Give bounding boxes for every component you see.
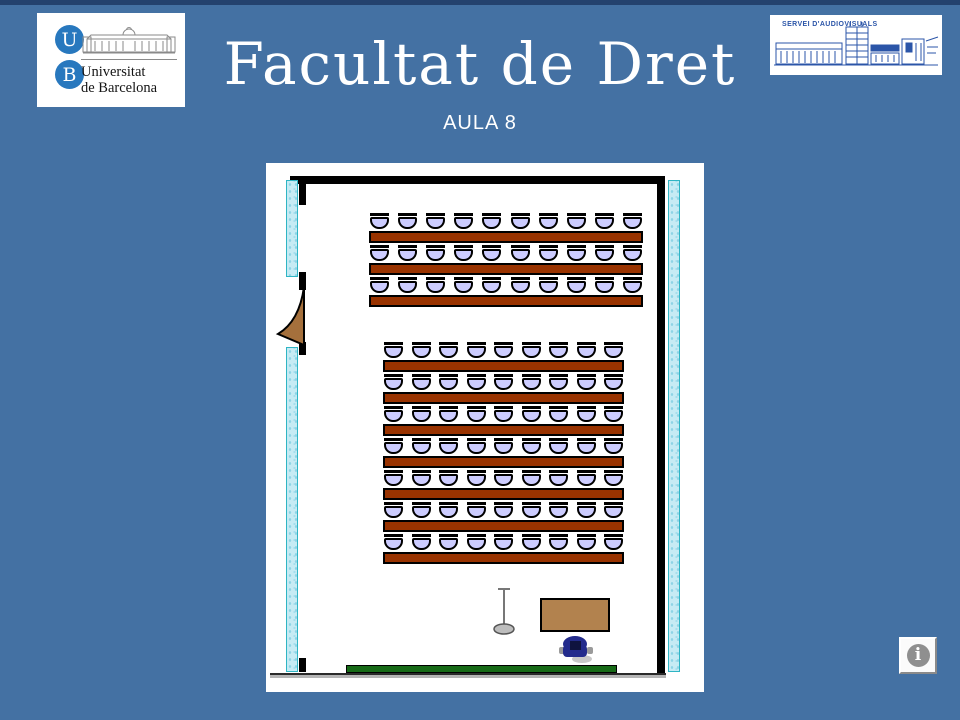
chair-icon: [538, 213, 559, 229]
chair-icon: [453, 213, 474, 229]
chair-icon: [521, 534, 542, 550]
av-services-logo: SERVEI D'AUDIOVISUALS: [770, 15, 942, 75]
chair-icon: [566, 213, 587, 229]
side-wall-strip: [286, 180, 298, 277]
desk-bench: [369, 263, 643, 275]
chair-icon: [603, 342, 624, 358]
chair-icon: [521, 438, 542, 454]
chair-icon: [493, 406, 514, 422]
chair-row: [383, 374, 624, 390]
chair-icon: [576, 534, 597, 550]
wall-top: [290, 176, 664, 184]
chair-icon: [481, 245, 502, 261]
chair-icon: [493, 438, 514, 454]
chair-icon: [383, 534, 404, 550]
desk-bench: [383, 520, 624, 532]
chair-icon: [576, 406, 597, 422]
chair-icon: [466, 438, 487, 454]
desk-bench: [383, 392, 624, 404]
desk-bench: [383, 552, 624, 564]
door-icon: [273, 281, 307, 351]
chair-icon: [438, 374, 459, 390]
wall-left-segment: [299, 658, 306, 672]
chair-icon: [548, 502, 569, 518]
chair-icon: [411, 534, 432, 550]
chair-icon: [369, 277, 390, 293]
chair-row: [369, 213, 643, 229]
top-border-band: [0, 0, 960, 5]
chair-icon: [548, 470, 569, 486]
side-wall-strip: [286, 347, 298, 672]
chair-icon: [383, 406, 404, 422]
chair-icon: [576, 438, 597, 454]
seat-block-main: [383, 342, 624, 566]
chair-icon: [594, 213, 615, 229]
chair-icon: [383, 470, 404, 486]
chair-icon: [521, 502, 542, 518]
chair-icon: [397, 213, 418, 229]
chair-icon: [603, 502, 624, 518]
seat-block-back: [369, 213, 643, 309]
chair-icon: [576, 470, 597, 486]
chair-icon: [453, 245, 474, 261]
chair-icon: [438, 470, 459, 486]
chair-icon: [538, 277, 559, 293]
chair-icon: [369, 245, 390, 261]
info-button[interactable]: i: [899, 637, 937, 674]
chair-icon: [548, 438, 569, 454]
chair-icon: [466, 406, 487, 422]
chair-icon: [466, 470, 487, 486]
chair-icon: [438, 406, 459, 422]
chair-icon: [510, 245, 531, 261]
room-subtitle: AULA 8: [0, 112, 960, 135]
teacher-chair-icon: [558, 635, 594, 663]
chair-icon: [521, 406, 542, 422]
chair-icon: [369, 213, 390, 229]
chair-icon: [411, 342, 432, 358]
chair-icon: [603, 534, 624, 550]
chair-icon: [521, 470, 542, 486]
chair-icon: [622, 277, 643, 293]
chair-icon: [521, 342, 542, 358]
chair-icon: [603, 406, 624, 422]
chair-icon: [622, 245, 643, 261]
chair-icon: [603, 470, 624, 486]
classroom-floor-plan: [266, 163, 704, 692]
chair-icon: [438, 534, 459, 550]
chair-icon: [438, 342, 459, 358]
av-logo-label: SERVEI D'AUDIOVISUALS: [782, 21, 878, 28]
chair-icon: [438, 438, 459, 454]
chair-icon: [538, 245, 559, 261]
chair-icon: [453, 277, 474, 293]
chair-icon: [576, 342, 597, 358]
chair-icon: [493, 374, 514, 390]
chair-icon: [411, 438, 432, 454]
chair-icon: [548, 406, 569, 422]
chair-icon: [493, 502, 514, 518]
info-icon: i: [907, 644, 930, 667]
chair-icon: [493, 534, 514, 550]
chair-row: [383, 342, 624, 358]
chair-icon: [548, 374, 569, 390]
chair-icon: [425, 213, 446, 229]
desk-bench: [383, 488, 624, 500]
chair-icon: [493, 470, 514, 486]
chair-icon: [466, 534, 487, 550]
chair-icon: [594, 245, 615, 261]
chair-icon: [411, 374, 432, 390]
slide: U B Universitat de Barcelona Facultat de…: [0, 0, 960, 720]
chair-icon: [438, 502, 459, 518]
chair-icon: [466, 502, 487, 518]
chair-icon: [425, 245, 446, 261]
chair-icon: [383, 502, 404, 518]
chair-icon: [594, 277, 615, 293]
chair-icon: [493, 342, 514, 358]
chair-row: [383, 470, 624, 486]
chair-icon: [622, 213, 643, 229]
chair-icon: [603, 374, 624, 390]
chair-icon: [466, 342, 487, 358]
side-wall-strip: [668, 180, 680, 672]
teacher-table: [540, 598, 610, 632]
chair-icon: [411, 406, 432, 422]
chair-icon: [603, 438, 624, 454]
microphone-stand-icon: [493, 587, 515, 635]
desk-bench: [383, 456, 624, 468]
chair-row: [383, 502, 624, 518]
chair-icon: [383, 374, 404, 390]
chair-icon: [481, 213, 502, 229]
chair-icon: [481, 277, 502, 293]
chair-icon: [383, 438, 404, 454]
chair-row: [383, 406, 624, 422]
chair-icon: [411, 470, 432, 486]
desk-bench: [369, 231, 643, 243]
chair-icon: [548, 534, 569, 550]
chair-icon: [576, 502, 597, 518]
chair-icon: [521, 374, 542, 390]
chair-row: [369, 277, 643, 293]
wall-right: [657, 176, 665, 678]
blackboard: [346, 665, 617, 673]
chair-row: [369, 245, 643, 261]
chair-icon: [411, 502, 432, 518]
desk-bench: [383, 360, 624, 372]
chair-icon: [466, 374, 487, 390]
chair-icon: [397, 245, 418, 261]
chair-icon: [425, 277, 446, 293]
wall-left-segment: [299, 176, 306, 205]
chair-row: [383, 534, 624, 550]
chair-icon: [566, 277, 587, 293]
chair-icon: [397, 277, 418, 293]
chair-icon: [510, 213, 531, 229]
chair-icon: [566, 245, 587, 261]
desk-bench: [383, 424, 624, 436]
chair-icon: [510, 277, 531, 293]
chair-row: [383, 438, 624, 454]
chair-icon: [576, 374, 597, 390]
chair-icon: [383, 342, 404, 358]
desk-bench: [369, 295, 643, 307]
chair-icon: [548, 342, 569, 358]
wall-bottom: [270, 673, 666, 678]
